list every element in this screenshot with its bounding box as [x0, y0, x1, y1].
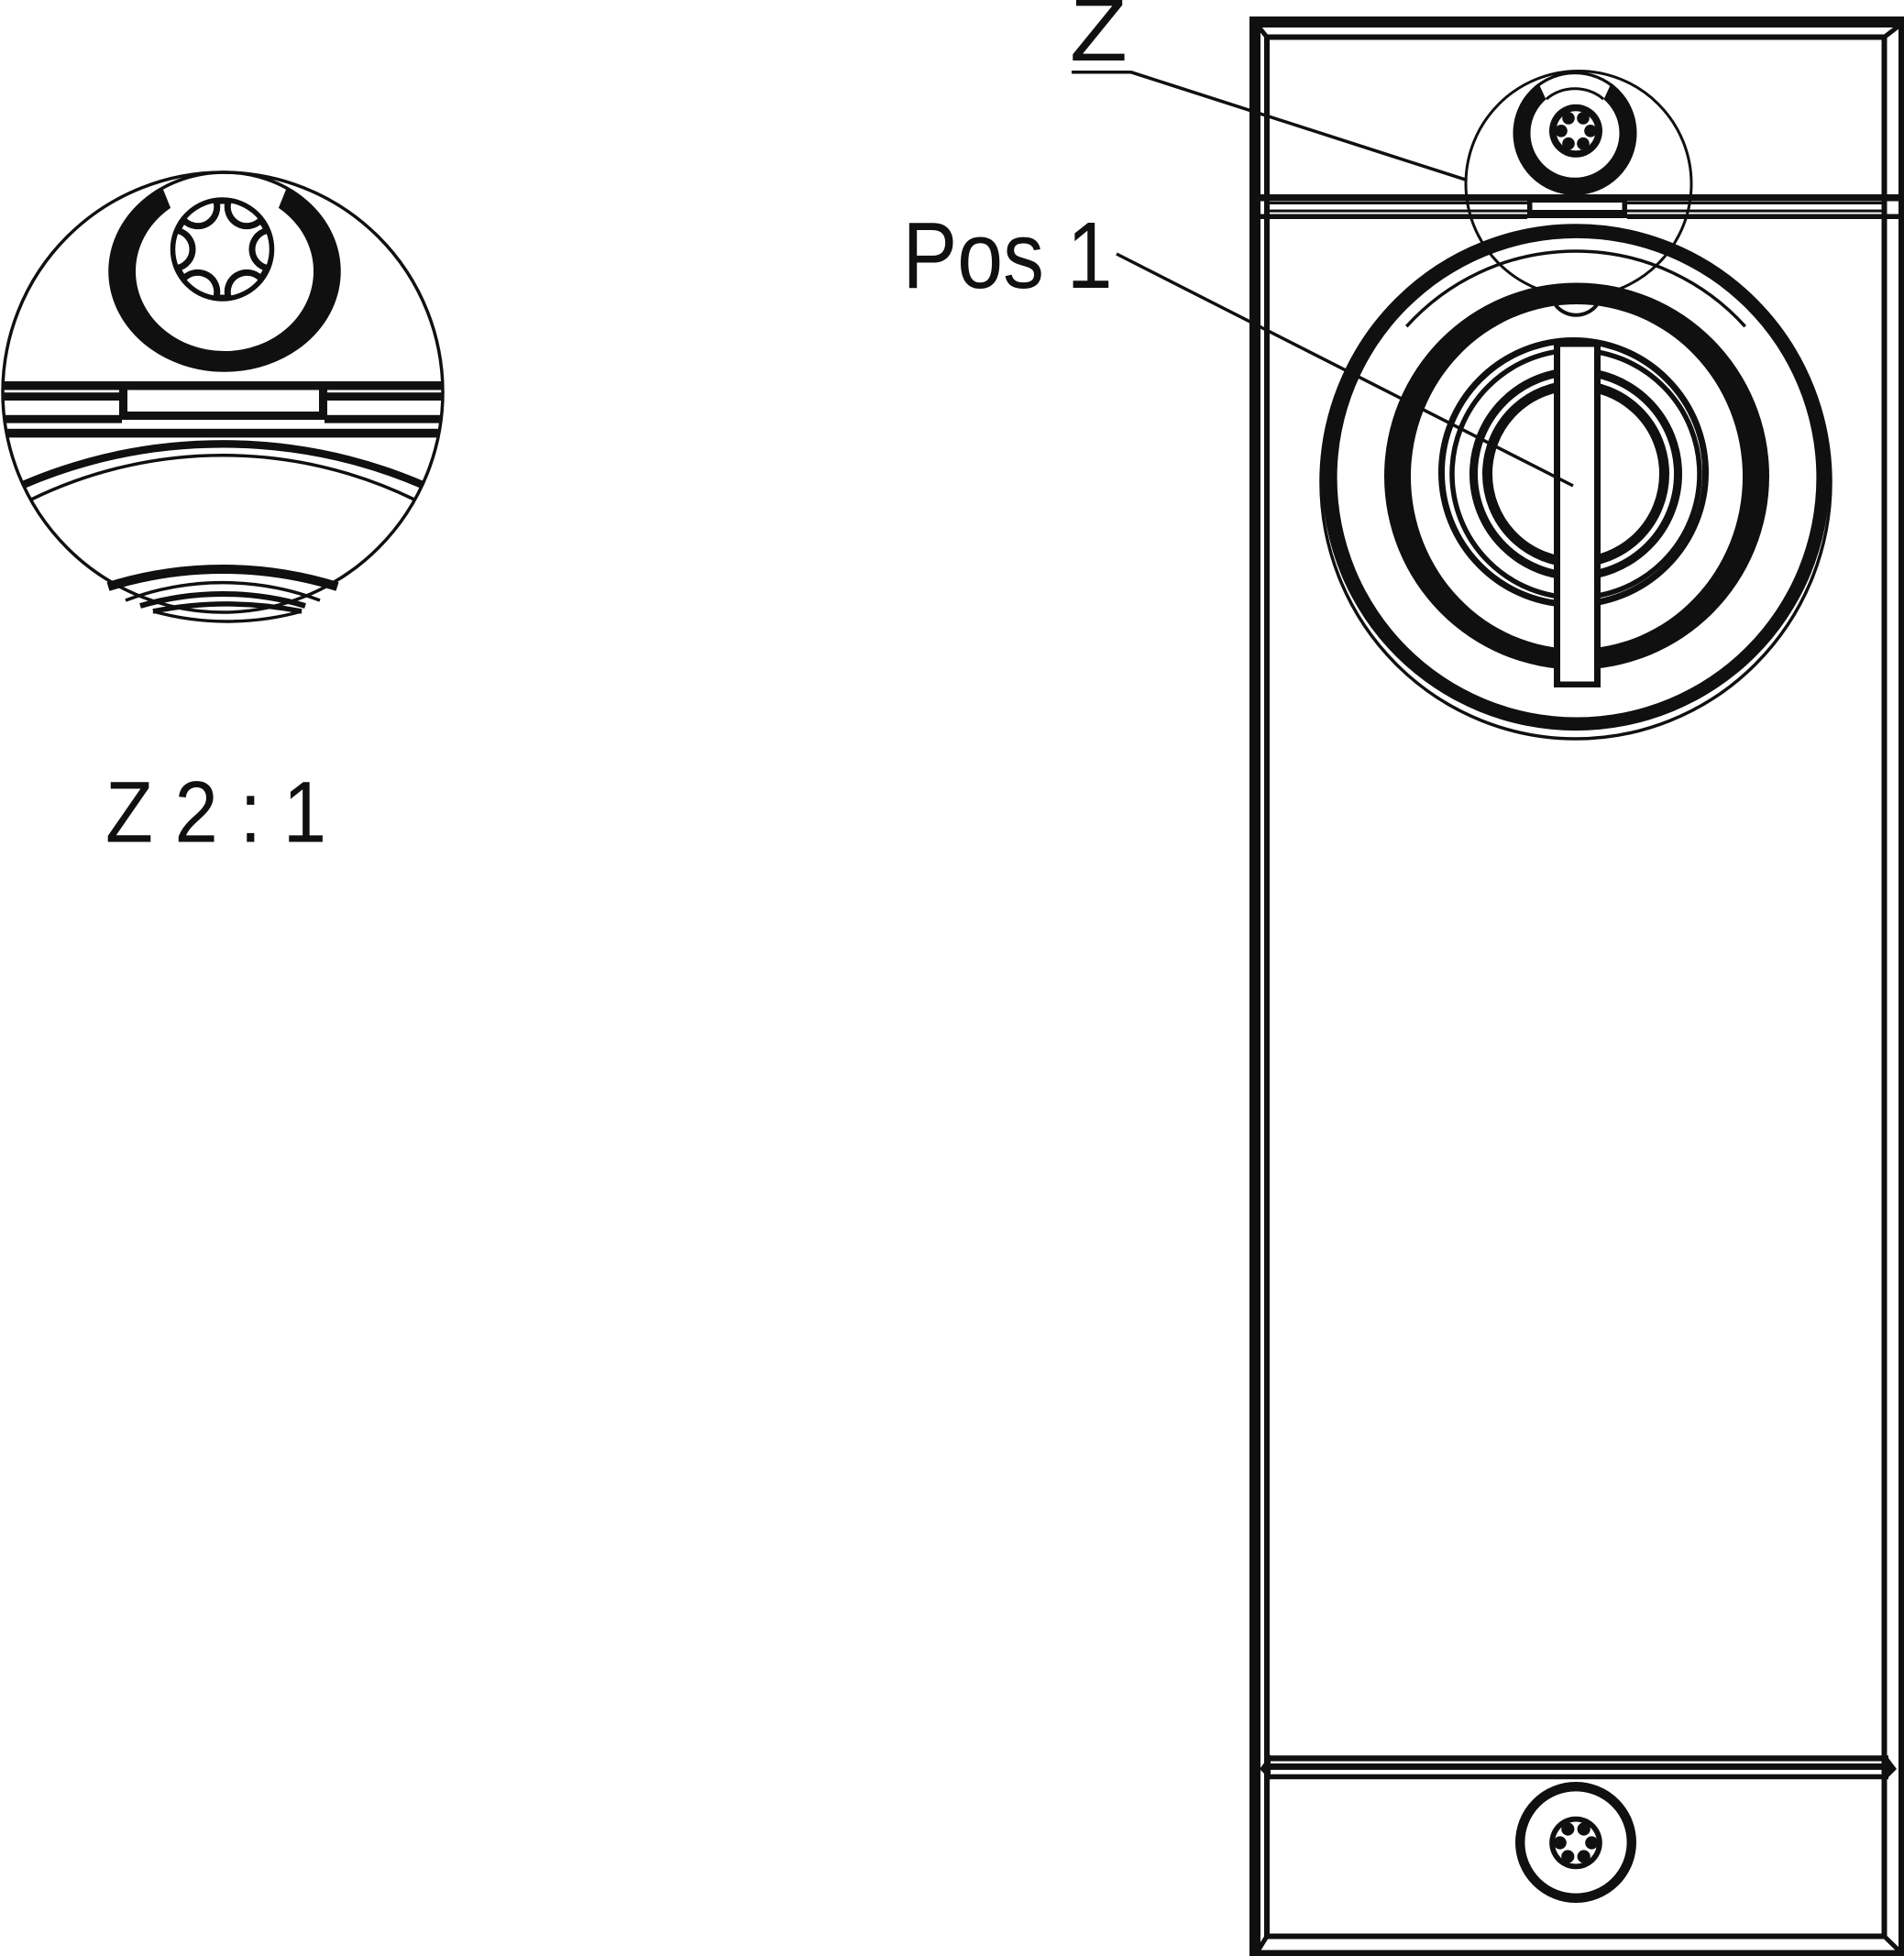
svg-text:Z: Z	[1070, 0, 1128, 80]
svg-text:Pos 1: Pos 1	[903, 203, 1113, 308]
svg-text:Z 2 : 1: Z 2 : 1	[105, 764, 326, 861]
